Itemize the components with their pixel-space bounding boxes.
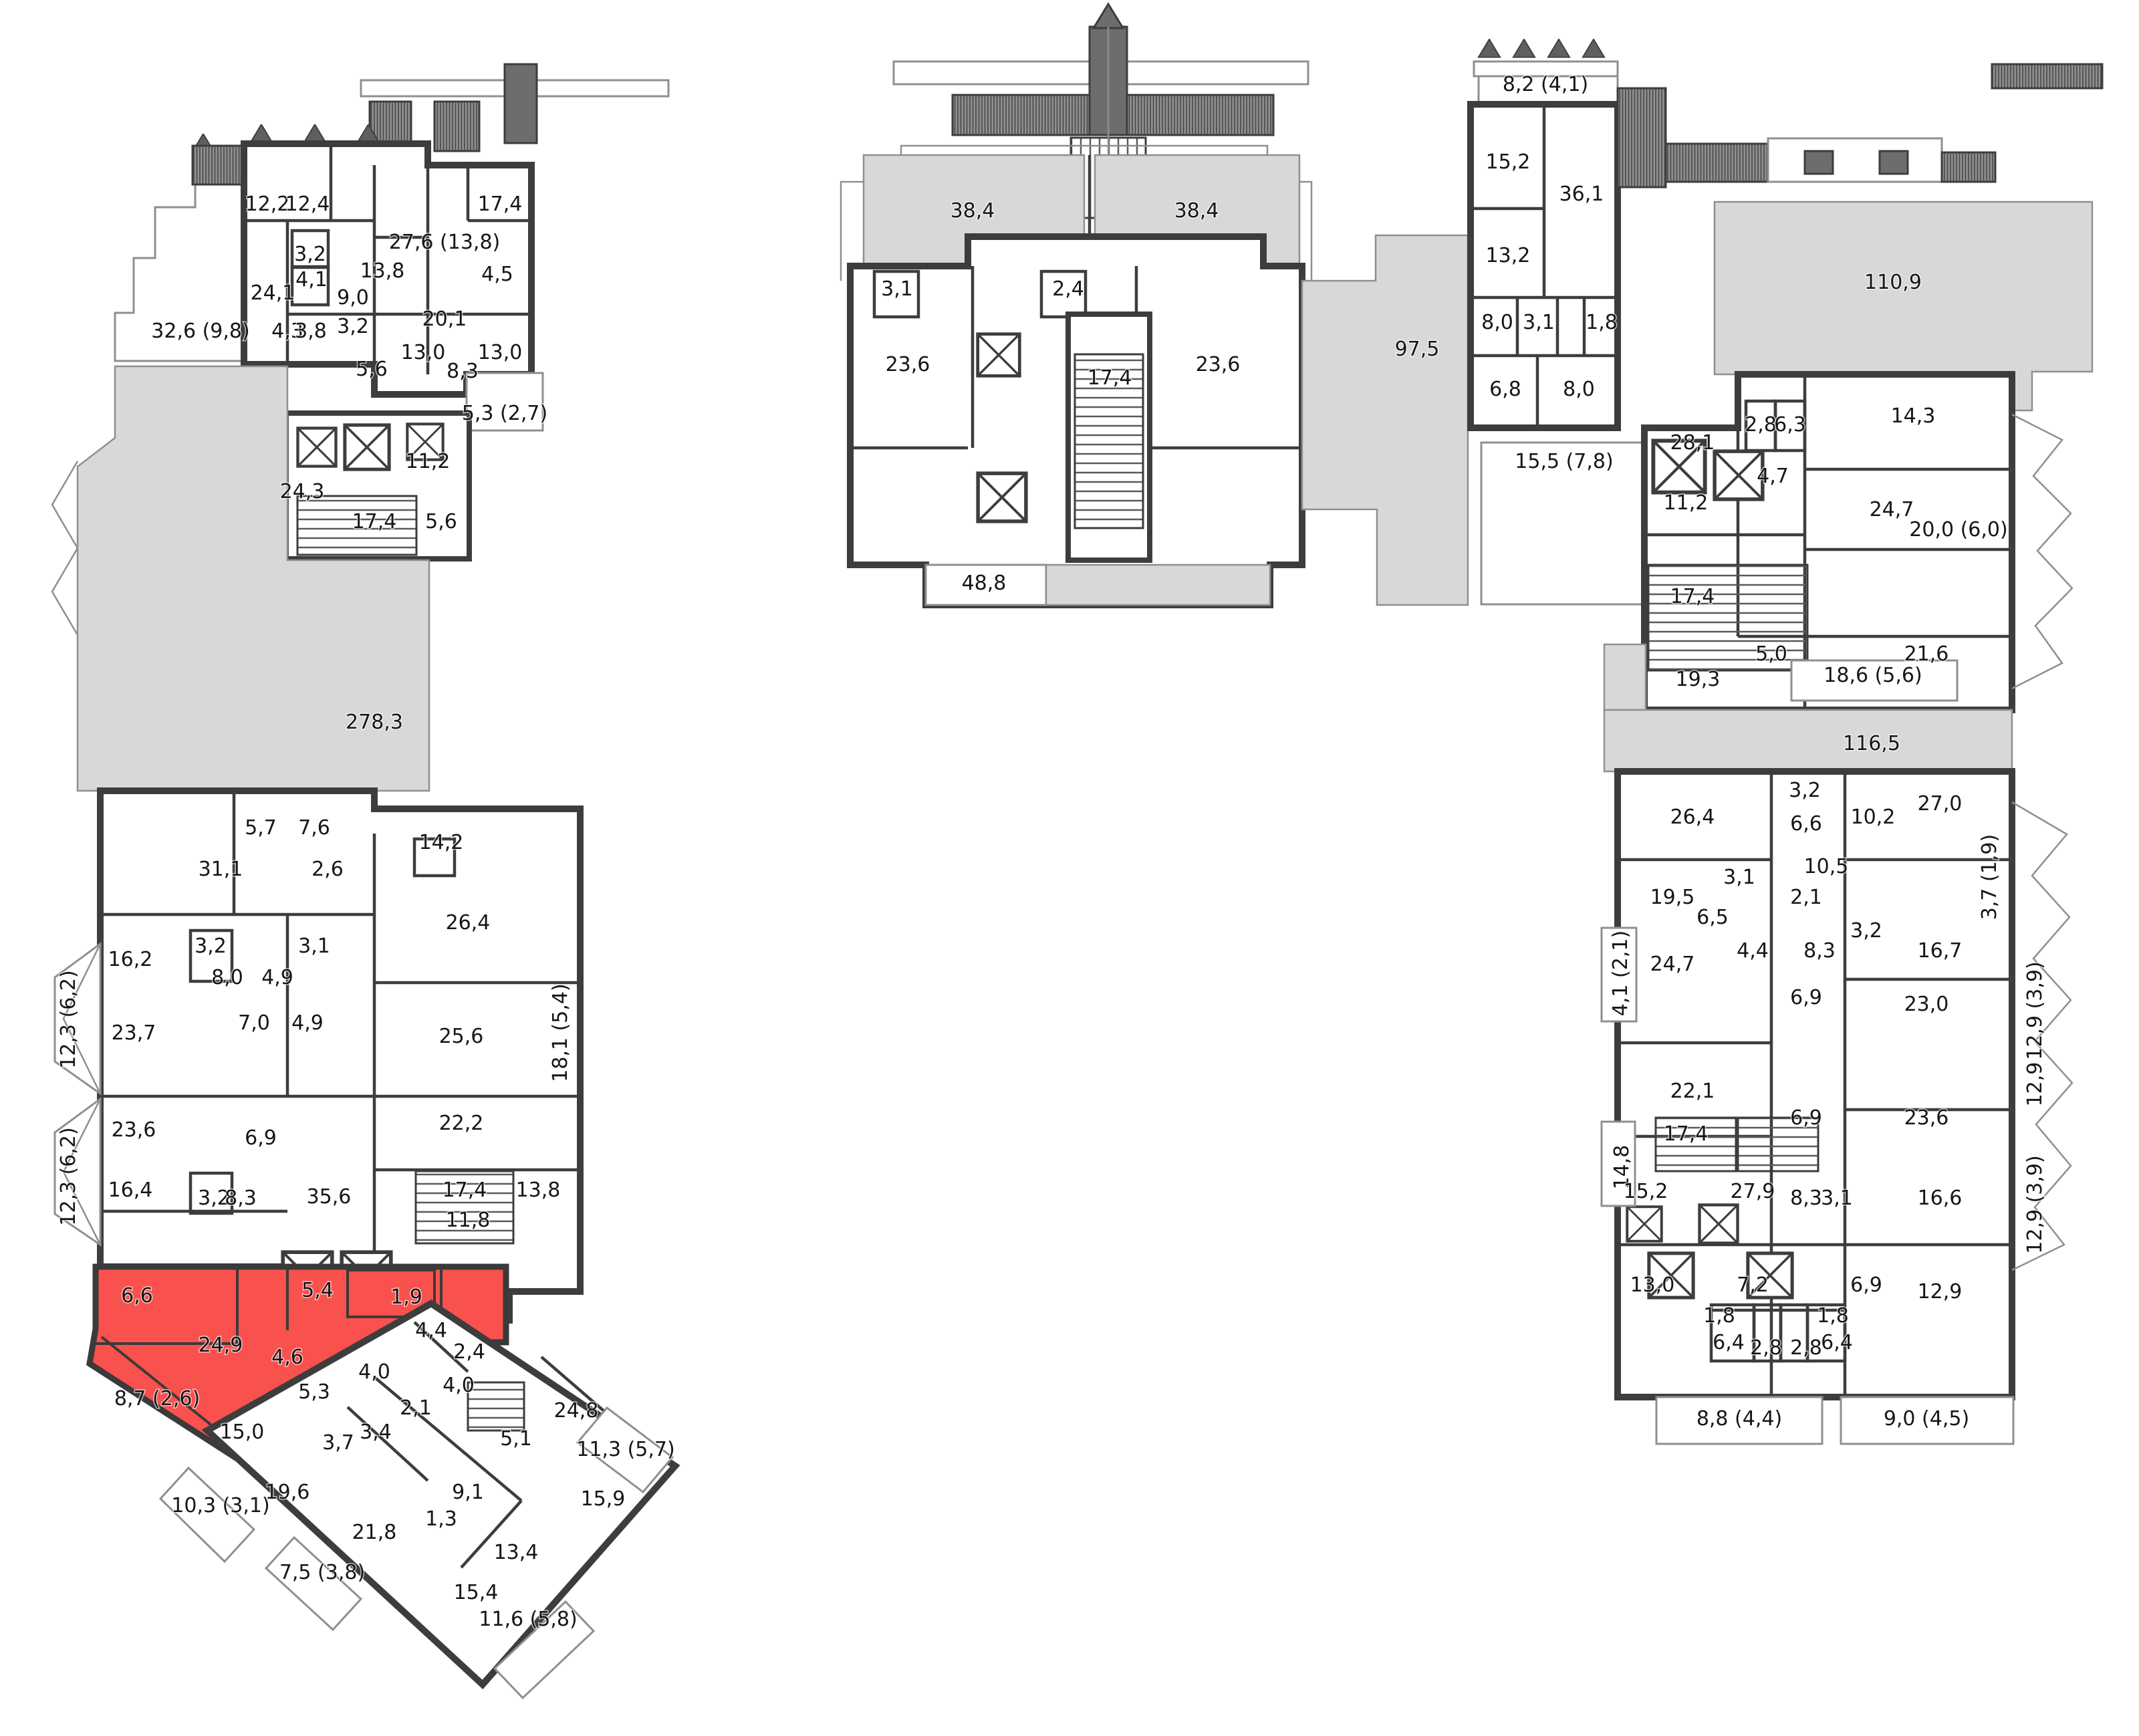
room-area-label: 6,4 xyxy=(1713,1331,1745,1354)
terrace-97-5 xyxy=(1302,235,1468,605)
battlement-icon xyxy=(1548,39,1569,57)
room-area-label: 22,1 xyxy=(1670,1080,1715,1103)
room-area-label: 4,4 xyxy=(415,1319,447,1342)
room-area-label: 12,3 (6,2) xyxy=(57,970,80,1068)
room-area-label: 12,2 xyxy=(245,193,290,216)
room-area-label: 4,0 xyxy=(358,1360,390,1384)
battlement-icon xyxy=(250,124,273,143)
room-area-label: 6,5 xyxy=(1696,906,1729,929)
roof-window xyxy=(1880,151,1908,174)
room-area-label: 2,1 xyxy=(400,1396,432,1420)
room-area-label: 3,2 xyxy=(1789,779,1821,802)
room-area-label: 32,6 (9,8) xyxy=(151,320,249,343)
room-area-label: 6,8 xyxy=(1489,378,1521,401)
room-area-label: 7,2 xyxy=(1737,1273,1769,1297)
room-area-label: 19,6 xyxy=(265,1481,310,1504)
room-area-label: 3,1 xyxy=(1821,1187,1853,1210)
roof-hatch xyxy=(1992,64,2102,88)
room-area-label: 22,2 xyxy=(439,1112,484,1135)
terrace-arm xyxy=(1604,644,1646,711)
elevator-icon xyxy=(1627,1207,1662,1241)
room-area-label: 20,0 (6,0) xyxy=(1909,518,2007,541)
room-area-label: 27,6 (13,8) xyxy=(389,231,501,254)
elevator-icon xyxy=(1715,451,1763,499)
room-area-label: 3,7 xyxy=(322,1431,354,1455)
room-area-label: 13,2 xyxy=(1486,244,1531,267)
room-area-label: 17,4 xyxy=(443,1179,487,1202)
floor-plan-canvas: 12,212,417,427,6 (13,8)3,24,124,113,89,0… xyxy=(0,0,2139,1736)
room-area-label: 23,6 xyxy=(1196,353,1241,376)
room-area-label: 11,2 xyxy=(406,450,451,473)
room-area-label: 6,9 xyxy=(1790,986,1822,1009)
room-area-label: 23,0 xyxy=(1904,993,1949,1016)
staircase xyxy=(468,1382,524,1431)
room-area-label: 4,9 xyxy=(261,966,293,989)
room-area-label: 19,3 xyxy=(1676,668,1721,691)
room-area-label: 12,9 xyxy=(1918,1280,1963,1304)
room-area-label: 8,0 xyxy=(1481,311,1513,334)
room-area-label: 16,4 xyxy=(108,1179,153,1202)
room-area-label: 5,6 xyxy=(356,358,388,381)
battlement-icon xyxy=(1583,39,1604,57)
spire-icon xyxy=(1094,4,1123,28)
room-area-label: 6,9 xyxy=(1790,1106,1822,1130)
room-area-label: 11,2 xyxy=(1664,491,1709,515)
room-area-label: 17,4 xyxy=(1670,585,1715,608)
room-area-label: 5,7 xyxy=(245,816,277,840)
room-area-label: 9,1 xyxy=(452,1481,484,1504)
room-area-label: 1,9 xyxy=(390,1285,422,1309)
room-area-label: 28,1 xyxy=(1670,431,1715,455)
room-area-label: 97,5 xyxy=(1395,338,1440,361)
room-area-label: 3,4 xyxy=(360,1420,392,1444)
chimney xyxy=(505,64,537,143)
room-area-label: 8,0 xyxy=(1563,378,1595,401)
room-area-label: 6,4 xyxy=(1821,1331,1853,1354)
room-area-label: 7,5 (3,8) xyxy=(279,1561,365,1584)
room-area-label: 24,7 xyxy=(1870,498,1914,521)
room-area-label: 27,0 xyxy=(1918,792,1963,816)
room-area-label: 1,8 xyxy=(1817,1304,1849,1328)
room-area-label: 24,1 xyxy=(251,281,295,305)
roof-hatch xyxy=(1942,152,1995,182)
bay-windows xyxy=(2012,414,2072,689)
room-area-label: 5,3 xyxy=(298,1380,330,1404)
room-area-label: 13,8 xyxy=(516,1179,561,1202)
room-area-label: 10,5 xyxy=(1804,855,1849,878)
room-area-label: 21,6 xyxy=(1904,642,1949,666)
room-area-label: 3,1 xyxy=(1523,311,1555,334)
room-area-label: 13,8 xyxy=(360,259,405,283)
room-area-label: 27,9 xyxy=(1731,1180,1775,1203)
terrace-strip xyxy=(1046,565,1270,605)
roof-window xyxy=(1805,151,1833,174)
room-area-label: 23,6 xyxy=(112,1118,156,1142)
room-area-label: 15,0 xyxy=(220,1420,265,1444)
room-area-label: 2,4 xyxy=(1052,277,1084,301)
room-area-label: 38,4 xyxy=(1174,199,1219,223)
center-block xyxy=(841,4,1468,605)
roof-parapet xyxy=(1768,138,1942,182)
room-area-label: 3,1 xyxy=(298,935,330,958)
room-area-label: 2,6 xyxy=(311,858,344,881)
elevator-icon xyxy=(345,425,389,469)
room-area-label: 6,9 xyxy=(245,1126,277,1150)
room-area-label: 24,3 xyxy=(280,480,325,503)
right-wing xyxy=(1471,39,2102,1444)
room-area-label: 17,4 xyxy=(1664,1122,1709,1146)
room-area-label: 8,8 (4,4) xyxy=(1696,1407,1782,1431)
room-area-label: 8,3 xyxy=(1790,1187,1822,1210)
roof-hatch xyxy=(434,102,479,151)
room-area-label: 13,0 xyxy=(478,341,523,364)
room-area-label: 14,2 xyxy=(419,831,464,854)
room-area-label: 8,3 xyxy=(225,1187,257,1210)
room-area-label: 2,8 xyxy=(1745,413,1777,437)
room-area-label: 4,1 (2,1) xyxy=(1609,931,1632,1016)
room-area-label: 15,9 xyxy=(581,1487,626,1511)
room-area-label: 15,4 xyxy=(454,1581,499,1604)
room-area-label: 3,1 xyxy=(1723,866,1755,889)
room-area-label: 13,0 xyxy=(1630,1273,1675,1297)
room-area-label: 12,4 xyxy=(285,193,330,216)
room-area-label: 6,3 xyxy=(1774,413,1806,437)
room-area-label: 26,4 xyxy=(446,911,491,935)
room-area-label: 2,8 xyxy=(1750,1336,1782,1360)
room-area-label: 19,5 xyxy=(1650,886,1695,909)
roof-hatch xyxy=(1666,144,1768,182)
room-area-label: 11,3 (5,7) xyxy=(576,1438,674,1461)
room-area-label: 13,4 xyxy=(494,1541,539,1564)
room-area-label: 1,8 xyxy=(1703,1304,1735,1328)
battlement-icon xyxy=(303,124,326,143)
room-area-label: 3,7 (1,9) xyxy=(1978,834,2001,920)
room-area-label: 20,1 xyxy=(422,307,467,331)
room-area-label: 11,6 (5,8) xyxy=(479,1608,577,1631)
room-area-label: 24,9 xyxy=(199,1334,243,1357)
terrace-bays xyxy=(52,461,78,635)
room-area-label: 4,5 xyxy=(481,263,513,286)
room-area-label: 2,4 xyxy=(453,1340,485,1364)
elevator-icon xyxy=(978,334,1020,376)
room-area-label: 12,9 xyxy=(2023,1062,2047,1107)
elevator-icon xyxy=(1699,1205,1737,1243)
room-area-label: 26,4 xyxy=(1670,805,1715,829)
room-area-label: 24,8 xyxy=(554,1399,599,1422)
room-area-label: 21,8 xyxy=(352,1521,397,1544)
roof-hatch xyxy=(1618,88,1666,187)
room-area-label: 9,0 xyxy=(337,286,369,309)
battlement-icon xyxy=(1513,39,1535,57)
room-area-label: 110,9 xyxy=(1864,271,1922,294)
room-area-label: 36,1 xyxy=(1559,182,1604,206)
room-area-label: 11,8 xyxy=(446,1209,491,1232)
room-area-label: 1,3 xyxy=(425,1507,457,1531)
room-area-label: 16,6 xyxy=(1918,1187,1963,1210)
elevator-icon xyxy=(978,473,1026,521)
room-area-label: 3,2 xyxy=(294,243,326,266)
terrace-116-5 xyxy=(1604,710,2012,771)
room-area-label: 2,8 xyxy=(1790,1336,1822,1360)
room-area-label: 4,7 xyxy=(1757,465,1789,488)
room-area-label: 3,1 xyxy=(881,277,913,301)
room-area-label: 5,6 xyxy=(425,510,457,533)
room-area-label: 8,3 xyxy=(1803,939,1836,963)
room-area-label: 3,2 xyxy=(1850,919,1882,943)
room-area-label: 12,3 (6,2) xyxy=(57,1127,80,1225)
room-area-label: 3,8 xyxy=(295,320,327,343)
room-area-label: 4,4 xyxy=(1737,939,1769,963)
room-area-label: 38,4 xyxy=(951,199,995,223)
room-area-label: 17,4 xyxy=(478,193,523,216)
room-area-label: 5,3 (2,7) xyxy=(462,402,547,425)
room-area-label: 8,7 (2,6) xyxy=(114,1387,200,1410)
room-area-label: 15,2 xyxy=(1486,150,1531,174)
room-area-label: 16,2 xyxy=(108,948,153,971)
room-area-label: 2,1 xyxy=(1790,886,1822,909)
floor-plan-svg: 12,212,417,427,6 (13,8)3,24,124,113,89,0… xyxy=(0,0,2139,1736)
room-area-label: 23,7 xyxy=(112,1021,156,1045)
room-area-label: 5,4 xyxy=(301,1279,334,1302)
room-area-label: 5,0 xyxy=(1755,642,1787,666)
room-area-label: 14,3 xyxy=(1891,404,1936,428)
room-area-label: 12,9 (3,9) xyxy=(2023,961,2047,1060)
room-area-label: 17,4 xyxy=(1088,366,1132,390)
room-area-label: 23,6 xyxy=(886,353,930,376)
room-area-label: 35,6 xyxy=(307,1185,352,1209)
room-area-label: 8,3 xyxy=(447,360,479,383)
room-area-label: 4,0 xyxy=(443,1374,475,1397)
room-area-label: 48,8 xyxy=(962,572,1007,595)
elevator-icon xyxy=(297,428,336,466)
room-area-label: 25,6 xyxy=(439,1025,484,1048)
room-area-label: 24,7 xyxy=(1650,953,1695,976)
room-area-label: 8,0 xyxy=(211,966,243,989)
room-area-label: 6,6 xyxy=(1790,812,1822,836)
room-area-label: 12,9 (3,9) xyxy=(2023,1155,2047,1253)
room-area-label: 10,2 xyxy=(1851,805,1896,829)
room-area-label: 13,0 xyxy=(401,341,446,364)
room-area-label: 23,6 xyxy=(1904,1106,1949,1130)
room-area-label: 10,3 (3,1) xyxy=(171,1494,269,1517)
room-area-label: 4,1 xyxy=(295,268,328,291)
room-area-label: 5,1 xyxy=(500,1427,532,1451)
room-area-label: 18,1 (5,4) xyxy=(549,983,572,1082)
room-area-label: 278,3 xyxy=(346,711,403,734)
room-area-label: 8,2 (4,1) xyxy=(1503,73,1588,96)
room-area-label: 7,0 xyxy=(238,1011,270,1035)
room-area-label: 16,7 xyxy=(1918,939,1963,963)
room-area-label: 3,2 xyxy=(337,315,369,338)
battlement-icon xyxy=(1479,39,1500,57)
room-area-label: 7,6 xyxy=(298,816,330,840)
room-area-label: 1,8 xyxy=(1586,311,1618,334)
room-area-label: 6,9 xyxy=(1850,1273,1882,1297)
room-area-label: 31,1 xyxy=(199,858,243,881)
room-area-label: 15,5 (7,8) xyxy=(1515,450,1613,473)
room-area-label: 9,0 (4,5) xyxy=(1884,1407,1969,1431)
room-area-label: 116,5 xyxy=(1843,732,1900,755)
room-area-label: 3,2 xyxy=(195,935,227,958)
room-area-label: 17,4 xyxy=(352,510,397,533)
room-area-label: 6,6 xyxy=(121,1284,153,1308)
room-area-label: 4,9 xyxy=(291,1011,324,1035)
room-area-label: 15,2 xyxy=(1624,1180,1668,1203)
room-area-label: 18,6 (5,6) xyxy=(1823,664,1922,687)
room-area-label: 4,6 xyxy=(271,1346,303,1369)
roof-hatch xyxy=(193,146,245,184)
